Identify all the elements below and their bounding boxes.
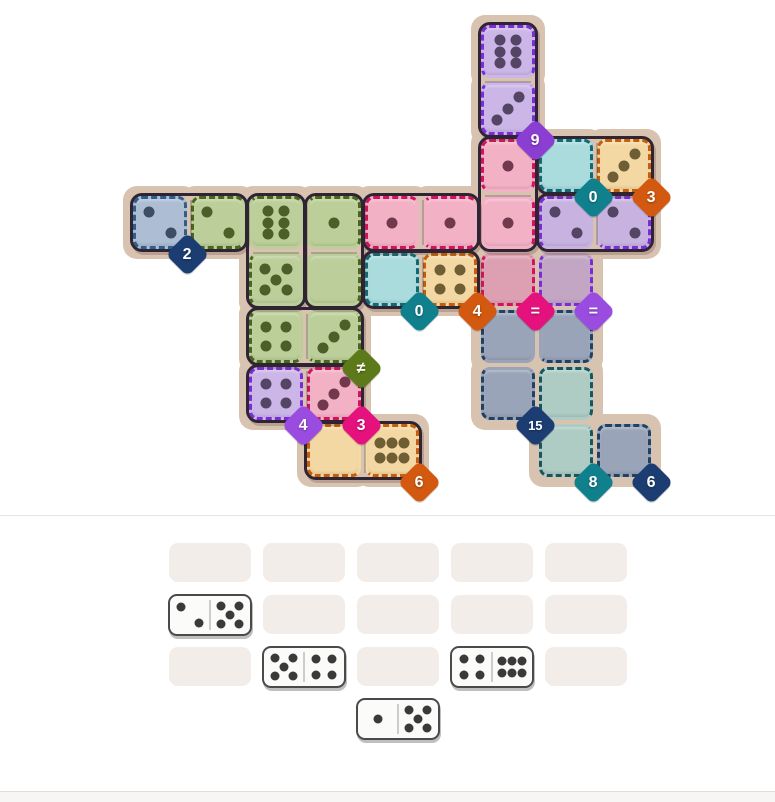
badge-label: 2 <box>183 246 192 262</box>
tray-slot <box>169 647 251 686</box>
badge-label: 0 <box>589 189 598 205</box>
badge-label: 0 <box>415 303 424 319</box>
pip <box>311 655 320 664</box>
badge-label: 15 <box>528 419 542 432</box>
placed-domino[interactable] <box>362 193 480 252</box>
pip <box>423 723 432 732</box>
board-cell-teal-lower[interactable] <box>539 367 593 420</box>
placed-domino[interactable] <box>478 22 538 138</box>
badge-label: 4 <box>473 303 482 319</box>
badge-label: 9 <box>531 132 540 148</box>
pip <box>194 619 203 628</box>
tray-domino-1-5[interactable] <box>356 698 440 740</box>
badge-label: ≠ <box>357 360 366 376</box>
placed-domino[interactable] <box>304 193 364 309</box>
badge-label: 6 <box>647 474 656 490</box>
tray-slot <box>451 595 533 634</box>
domino-divider <box>485 195 531 197</box>
pips-puzzle-app: 9032≠==041543866 <box>0 0 775 802</box>
badge-label: = <box>530 303 539 319</box>
pip <box>498 669 507 678</box>
pip <box>518 669 527 678</box>
tray-slot <box>357 543 439 582</box>
tray-domino-4-6[interactable] <box>450 646 534 688</box>
tray-slot <box>451 543 533 582</box>
tray-domino-5-4[interactable] <box>262 646 346 688</box>
pip <box>270 654 279 663</box>
domino-half-1 <box>358 700 398 738</box>
tray-domino-2-5[interactable] <box>168 594 252 636</box>
pip <box>518 656 527 665</box>
domino-half-5 <box>210 596 250 634</box>
tray-slot <box>357 595 439 634</box>
tray-slot <box>263 595 345 634</box>
pip <box>476 655 485 664</box>
tray-slot <box>357 647 439 686</box>
pip <box>177 602 186 611</box>
pip <box>404 723 413 732</box>
domino-half-6 <box>492 648 532 686</box>
pip <box>508 669 517 678</box>
pip <box>235 619 244 628</box>
placed-domino[interactable] <box>246 193 306 309</box>
tray-slot <box>169 543 251 582</box>
pip <box>280 663 289 672</box>
domino-half-5 <box>264 648 304 686</box>
pip <box>226 611 235 620</box>
pip <box>289 654 298 663</box>
pip <box>235 602 244 611</box>
domino-half-4 <box>452 648 492 686</box>
domino-half-5 <box>398 700 438 738</box>
footer-bar <box>0 791 775 802</box>
pip <box>459 655 468 664</box>
pip <box>311 670 320 679</box>
pip <box>498 656 507 665</box>
badge-label: 8 <box>589 474 598 490</box>
pip <box>414 715 423 724</box>
pip <box>328 670 337 679</box>
pip <box>270 671 279 680</box>
badge-label: 4 <box>299 417 308 433</box>
pip <box>374 715 383 724</box>
pip <box>289 671 298 680</box>
pip <box>423 706 432 715</box>
domino-half-4 <box>304 648 344 686</box>
pip <box>476 670 485 679</box>
domino-divider <box>311 252 357 254</box>
tray-slot <box>545 595 627 634</box>
pip <box>216 602 225 611</box>
pip <box>328 655 337 664</box>
tray-slot <box>263 543 345 582</box>
pip <box>459 670 468 679</box>
badge-label: 3 <box>357 417 366 433</box>
badge-label: = <box>588 303 597 319</box>
pip <box>508 656 517 665</box>
domino-divider <box>306 314 308 359</box>
domino-divider <box>485 81 531 83</box>
domino-divider <box>422 200 424 245</box>
placed-domino[interactable] <box>246 307 364 366</box>
domino-divider <box>253 252 299 254</box>
tray-slot <box>545 647 627 686</box>
section-divider <box>0 515 775 516</box>
badge-label: 3 <box>647 189 656 205</box>
pip <box>216 619 225 628</box>
pip <box>404 706 413 715</box>
tray-slot <box>545 543 627 582</box>
badge-label: 6 <box>415 474 424 490</box>
domino-half-2 <box>170 596 210 634</box>
